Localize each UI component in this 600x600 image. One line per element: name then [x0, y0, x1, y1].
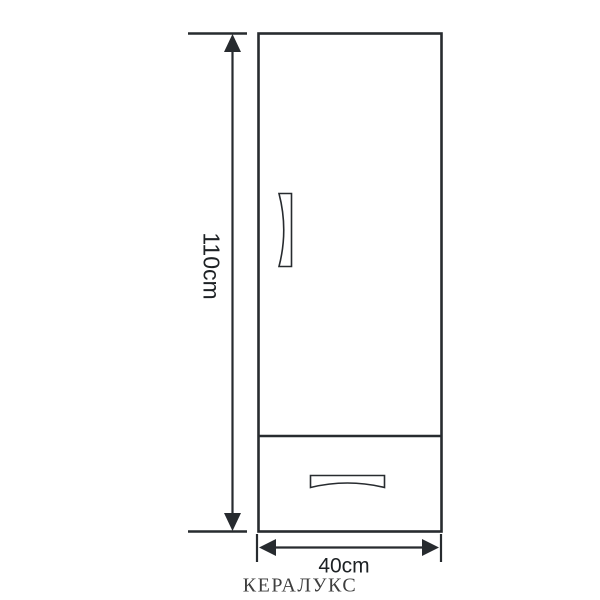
width-dimension-label: 40cm [318, 556, 369, 577]
arrow-right-icon [422, 539, 439, 556]
cabinet-outline [259, 34, 442, 532]
arrow-down-icon [224, 513, 241, 531]
cabinet-diagram [0, 0, 600, 600]
height-dimension-label: 110cm [200, 232, 223, 299]
brand-text: КЕРАЛУКС [243, 575, 357, 598]
arrow-up-icon [224, 34, 241, 52]
arrow-left-icon [259, 539, 276, 556]
diagram-page: 110cm 40cm КЕРАЛУКС [0, 0, 600, 600]
